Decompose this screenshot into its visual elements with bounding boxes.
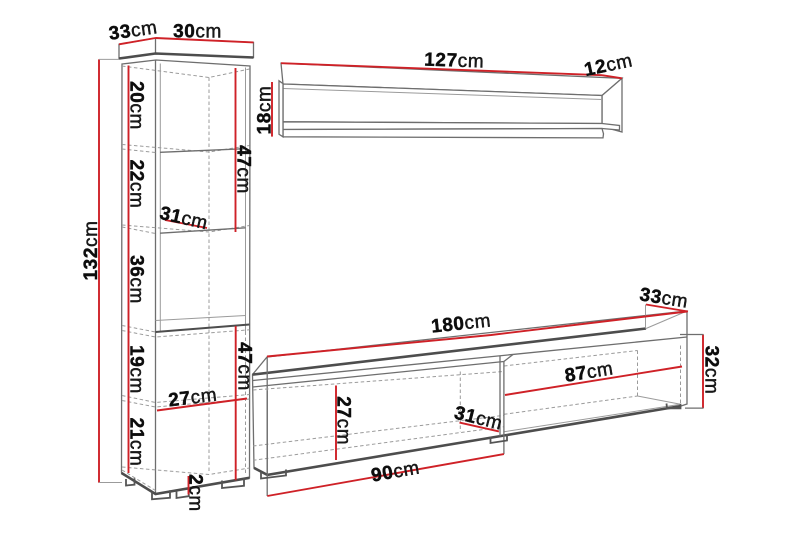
svg-text:127cm: 127cm xyxy=(424,49,485,72)
svg-text:47cm: 47cm xyxy=(233,145,254,194)
svg-text:2cm: 2cm xyxy=(185,474,206,512)
svg-text:27cm: 27cm xyxy=(333,396,354,445)
svg-text:132cm: 132cm xyxy=(81,220,102,280)
svg-text:20cm: 20cm xyxy=(126,81,147,130)
svg-text:32cm: 32cm xyxy=(701,346,722,395)
svg-text:18cm: 18cm xyxy=(254,86,275,135)
svg-text:21cm: 21cm xyxy=(126,418,147,467)
svg-text:47cm: 47cm xyxy=(234,342,255,391)
svg-text:19cm: 19cm xyxy=(126,345,147,394)
svg-text:30cm: 30cm xyxy=(173,22,222,43)
svg-text:22cm: 22cm xyxy=(126,160,147,209)
svg-text:36cm: 36cm xyxy=(126,255,147,304)
